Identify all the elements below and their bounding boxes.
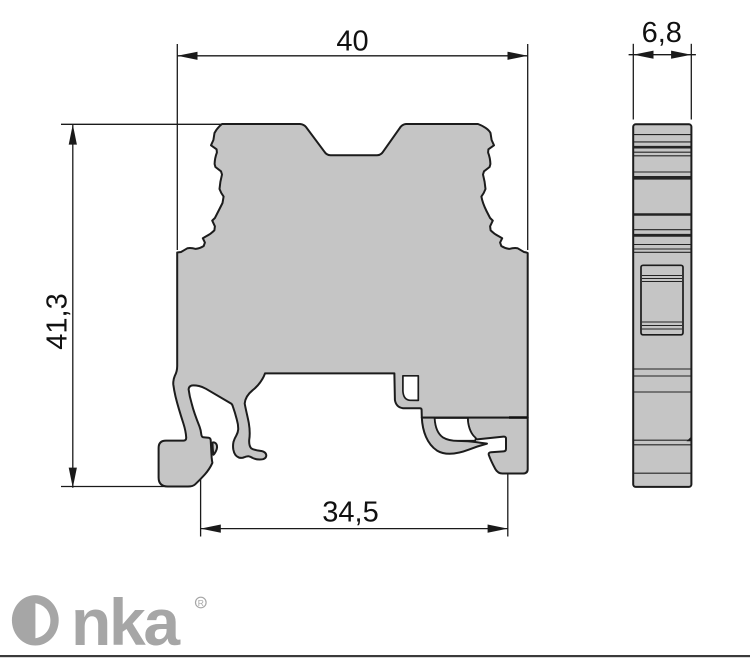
svg-text:40: 40 [336, 26, 368, 58]
svg-text:41,3: 41,3 [42, 293, 74, 349]
svg-text:34,5: 34,5 [322, 497, 378, 529]
svg-text:6,8: 6,8 [642, 17, 682, 49]
svg-text:nka: nka [71, 585, 181, 658]
svg-text:R: R [198, 598, 204, 608]
